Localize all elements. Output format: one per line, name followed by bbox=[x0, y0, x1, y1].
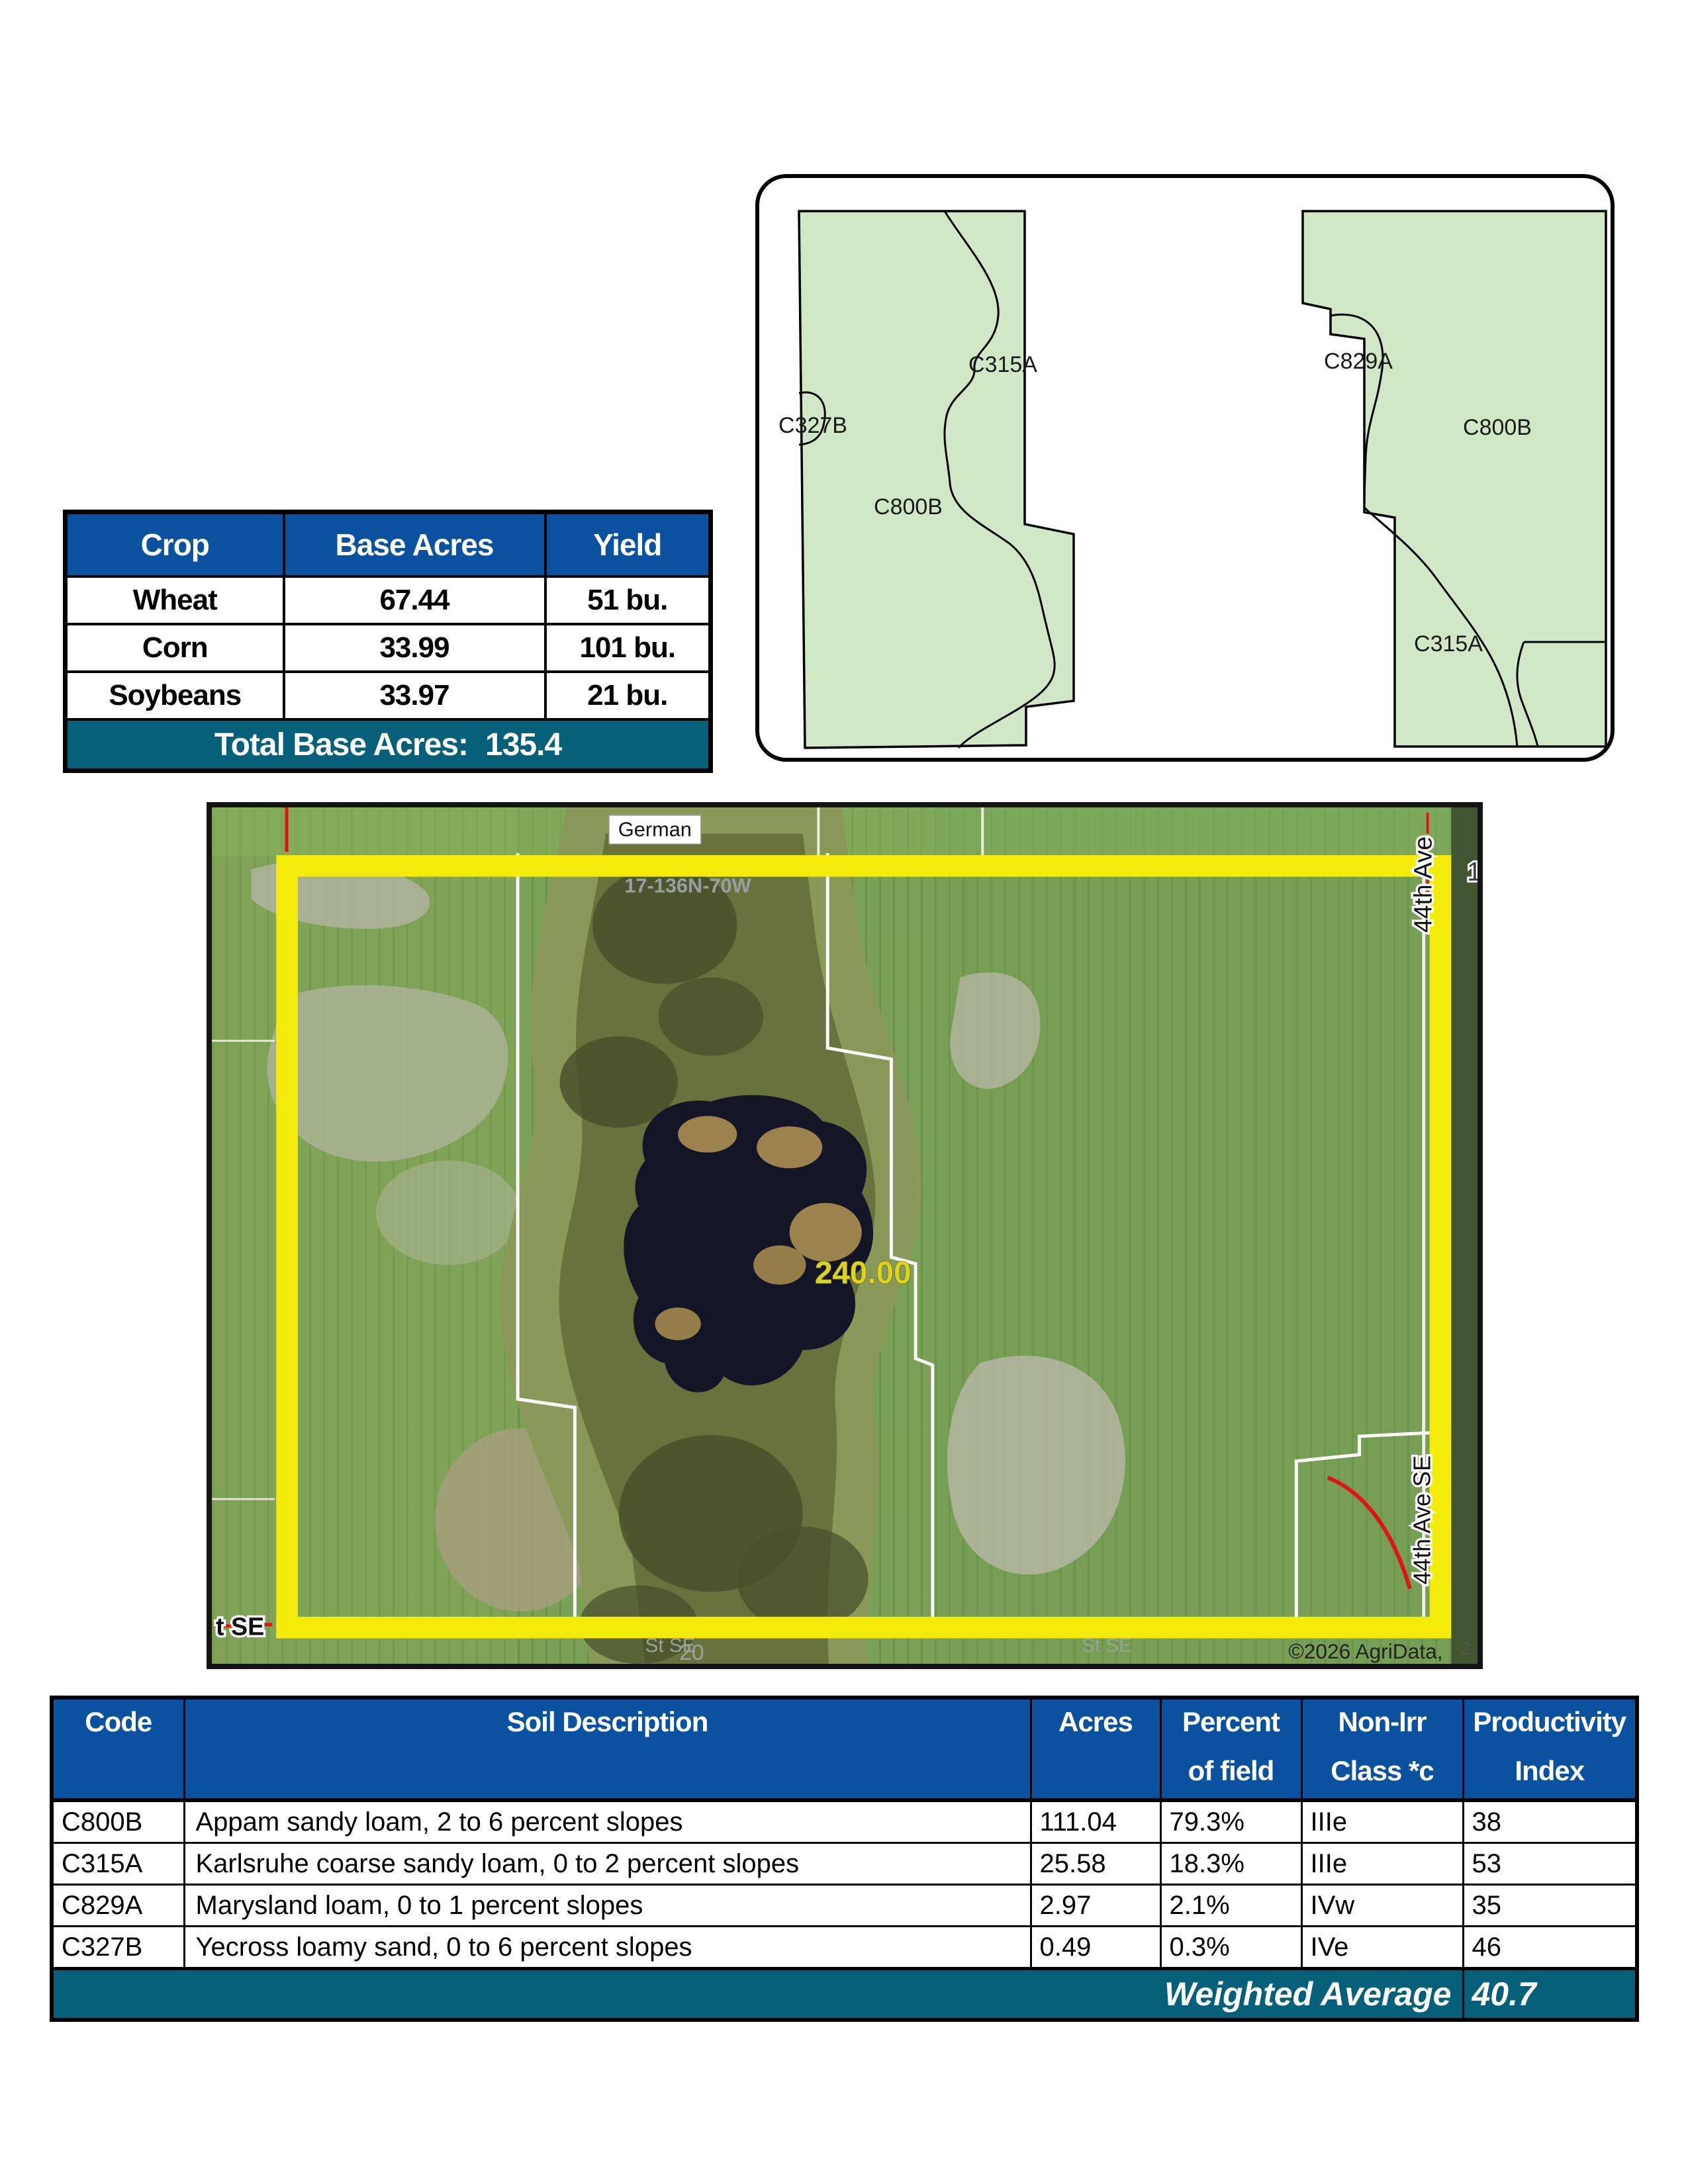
soil-productivity-index: 38 bbox=[1463, 1800, 1637, 1843]
soil-code-label: C315A bbox=[968, 352, 1037, 377]
table-row: C315A Karlsruhe coarse sandy loam, 0 to … bbox=[52, 1843, 1637, 1885]
pond-island bbox=[678, 1116, 737, 1152]
section-corner-number: 1 bbox=[1467, 858, 1477, 887]
total-base-acres-label: Total Base Acres: bbox=[214, 727, 468, 762]
aerial-overlay: German 17-136N-70W 240.00 44th Ave 1 44t… bbox=[212, 807, 1477, 1664]
crop-header-cell: Crop bbox=[66, 512, 284, 577]
code-header: Code bbox=[52, 1698, 184, 1800]
right-margin-strip bbox=[1451, 807, 1477, 1664]
soil-code-label: C829A bbox=[1324, 349, 1393, 374]
brush-patch bbox=[658, 978, 763, 1056]
brush-patch bbox=[737, 1527, 868, 1631]
header-line2: Index bbox=[1465, 1755, 1635, 1787]
soil-code: C327B bbox=[52, 1927, 184, 1969]
crop-base-acres: 67.44 bbox=[284, 576, 545, 624]
soil-code: C829A bbox=[52, 1885, 184, 1927]
acreage-label: 240.00 bbox=[815, 1255, 912, 1291]
header-line1: Percent bbox=[1162, 1706, 1300, 1738]
acres-header: Acres bbox=[1031, 1698, 1160, 1800]
township-label: 17-136N-70W bbox=[624, 874, 751, 897]
street-label-bottom-left: t SE bbox=[216, 1613, 264, 1641]
soil-percent: 2.1% bbox=[1160, 1885, 1301, 1927]
soil-non-irr-class: IVw bbox=[1301, 1885, 1463, 1927]
soil-non-irr-class: IVe bbox=[1301, 1927, 1463, 1969]
soil-description: Karlsruhe coarse sandy loam, 0 to 2 perc… bbox=[184, 1843, 1031, 1885]
copyright-label: ©2026 AgriData, bbox=[1288, 1639, 1442, 1663]
soil-code-label: C327B bbox=[778, 413, 847, 438]
pond-island bbox=[757, 1126, 822, 1168]
pond-island bbox=[790, 1203, 862, 1262]
soil-acres: 2.97 bbox=[1031, 1885, 1160, 1927]
table-row: C829A Marysland loam, 0 to 1 percent slo… bbox=[52, 1885, 1637, 1927]
soil-code-label: C800B bbox=[1463, 415, 1532, 440]
non-irr-header: Non-IrrClass *c bbox=[1301, 1698, 1463, 1800]
table-row: Corn 33.99 101 bu. bbox=[66, 624, 711, 672]
productivity-header: ProductivityIndex bbox=[1463, 1698, 1637, 1800]
total-base-acres-value: 135.4 bbox=[485, 727, 561, 762]
soil-description-table: Code Soil Description Acres Percentof fi… bbox=[50, 1696, 1639, 2022]
table-row: Wheat 67.44 51 bu. bbox=[66, 576, 711, 624]
soil-table-footer: Weighted Average 40.7 bbox=[52, 1969, 1637, 2021]
soil-percent: 79.3% bbox=[1160, 1800, 1301, 1843]
header-line1: Non-Irr bbox=[1303, 1706, 1462, 1738]
header-line1: Code bbox=[54, 1706, 183, 1738]
crop-yield: 101 bu. bbox=[545, 624, 711, 672]
crop-base-acres: 33.99 bbox=[284, 624, 545, 672]
soil-description: Yecross loamy sand, 0 to 6 percent slope… bbox=[184, 1927, 1031, 1969]
soil-code: C800B bbox=[52, 1800, 184, 1843]
percent-header: Percentof field bbox=[1160, 1698, 1301, 1800]
german-road-label: German bbox=[609, 815, 701, 844]
total-base-acres: Total Base Acres:135.4 bbox=[66, 719, 711, 771]
weighted-average-label: Weighted Average bbox=[52, 1969, 1463, 2021]
crop-name: Wheat bbox=[66, 576, 284, 624]
crop-table-footer: Total Base Acres:135.4 bbox=[66, 719, 711, 771]
soil-map-panel: C315A C327B C800B C829A C800B C315A bbox=[755, 173, 1615, 762]
crop-name: Soybeans bbox=[66, 672, 284, 719]
header-line1: Productivity bbox=[1465, 1706, 1635, 1738]
weighted-average-value: 40.7 bbox=[1463, 1969, 1637, 2021]
avenue-label-mid: 44th Ave SE bbox=[1409, 1455, 1436, 1584]
soil-productivity-index: 53 bbox=[1463, 1843, 1637, 1885]
header-line2: Class *c bbox=[1303, 1755, 1462, 1787]
soil-acres: 25.58 bbox=[1031, 1843, 1160, 1885]
soil-description: Marysland loam, 0 to 1 percent slopes bbox=[184, 1885, 1031, 1927]
yield-header-cell: Yield bbox=[545, 512, 711, 577]
soil-productivity-index: 46 bbox=[1463, 1927, 1637, 1969]
soil-description: Appam sandy loam, 2 to 6 percent slopes bbox=[184, 1800, 1031, 1843]
soil-acres: 0.49 bbox=[1031, 1927, 1160, 1969]
pond-island bbox=[753, 1246, 806, 1285]
soil-non-irr-class: IIIe bbox=[1301, 1800, 1463, 1843]
header-line1: Soil Description bbox=[186, 1706, 1029, 1738]
crop-yield: 51 bu. bbox=[545, 576, 711, 624]
soil-non-irr-class: IIIe bbox=[1301, 1843, 1463, 1885]
crop-table-header: Crop Base Acres Yield bbox=[66, 512, 711, 577]
soil-code: C315A bbox=[52, 1843, 184, 1885]
soil-productivity-index: 35 bbox=[1463, 1885, 1637, 1927]
header-line1: Acres bbox=[1033, 1706, 1159, 1738]
soil-table-header: Code Soil Description Acres Percentof fi… bbox=[52, 1698, 1637, 1800]
soil-map-drawing: C315A C327B C800B C829A C800B C315A bbox=[755, 173, 1615, 762]
table-row: Soybeans 33.97 21 bu. bbox=[66, 672, 711, 719]
table-row: C327B Yecross loamy sand, 0 to 6 percent… bbox=[52, 1927, 1637, 1969]
section-number-label: 20 bbox=[679, 1641, 704, 1664]
avenue-label-top: 44th Ave bbox=[1409, 837, 1437, 933]
soil-code-label: C315A bbox=[1414, 631, 1483, 657]
soil-acres: 111.04 bbox=[1031, 1800, 1160, 1843]
base-acres-header-cell: Base Acres bbox=[284, 512, 545, 577]
aerial-photo-map: German 17-136N-70W 240.00 44th Ave 1 44t… bbox=[207, 802, 1483, 1669]
road-name-text: German bbox=[618, 818, 692, 841]
pond-island bbox=[655, 1308, 700, 1340]
crop-base-acres: 33.97 bbox=[284, 672, 545, 719]
saline-patch bbox=[376, 1160, 520, 1265]
table-row: C800B Appam sandy loam, 2 to 6 percent s… bbox=[52, 1800, 1637, 1843]
description-header: Soil Description bbox=[184, 1698, 1031, 1800]
soil-percent: 18.3% bbox=[1160, 1843, 1301, 1885]
crop-base-acres-table: Crop Base Acres Yield Wheat 67.44 51 bu.… bbox=[63, 510, 713, 773]
street-label-right: St SE bbox=[1082, 1635, 1132, 1657]
header-line2: of field bbox=[1162, 1755, 1300, 1787]
soil-percent: 0.3% bbox=[1160, 1927, 1301, 1969]
edge-number-label: 2 bbox=[1460, 1638, 1470, 1659]
crop-name: Corn bbox=[66, 624, 284, 672]
soil-code-label: C800B bbox=[874, 494, 943, 520]
crop-yield: 21 bu. bbox=[545, 672, 711, 719]
